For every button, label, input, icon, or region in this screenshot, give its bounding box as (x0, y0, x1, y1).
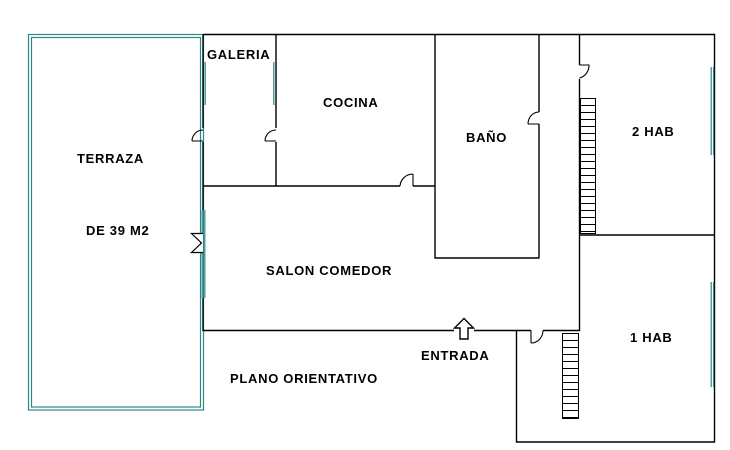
room-label-terraza-size: DE 39 M2 (86, 224, 149, 238)
door-cocina (400, 174, 413, 186)
room-label-hab2: 2 HAB (632, 125, 675, 139)
radiator-hab1 (562, 333, 579, 419)
radiator-hab2 (580, 98, 596, 234)
floor-plan: TERRAZA DE 39 M2 GALERIA COCINA BAÑO 2 H… (0, 0, 730, 450)
door-galeria-cocina (265, 130, 276, 141)
room-label-galeria: GALERIA (207, 48, 270, 62)
door-galeria-terraza (192, 130, 203, 141)
shutter-icon (192, 234, 204, 253)
plan-footer-note: PLANO ORIENTATIVO (230, 372, 378, 386)
room-label-bano: BAÑO (466, 131, 507, 145)
room-label-salon: SALON COMEDOR (266, 264, 392, 278)
entrance-label: ENTRADA (421, 349, 489, 363)
door-bano (528, 112, 539, 124)
door-hab1 (531, 331, 543, 344)
room-label-terraza: TERRAZA (77, 152, 144, 166)
room-label-cocina: COCINA (323, 96, 378, 110)
room-label-hab1: 1 HAB (630, 331, 673, 345)
window-hab2 (711, 67, 713, 155)
door-hab2 (580, 65, 590, 78)
entrance-arrow-icon (455, 319, 474, 340)
bano-walls (435, 35, 540, 259)
window-hab1 (711, 282, 713, 387)
